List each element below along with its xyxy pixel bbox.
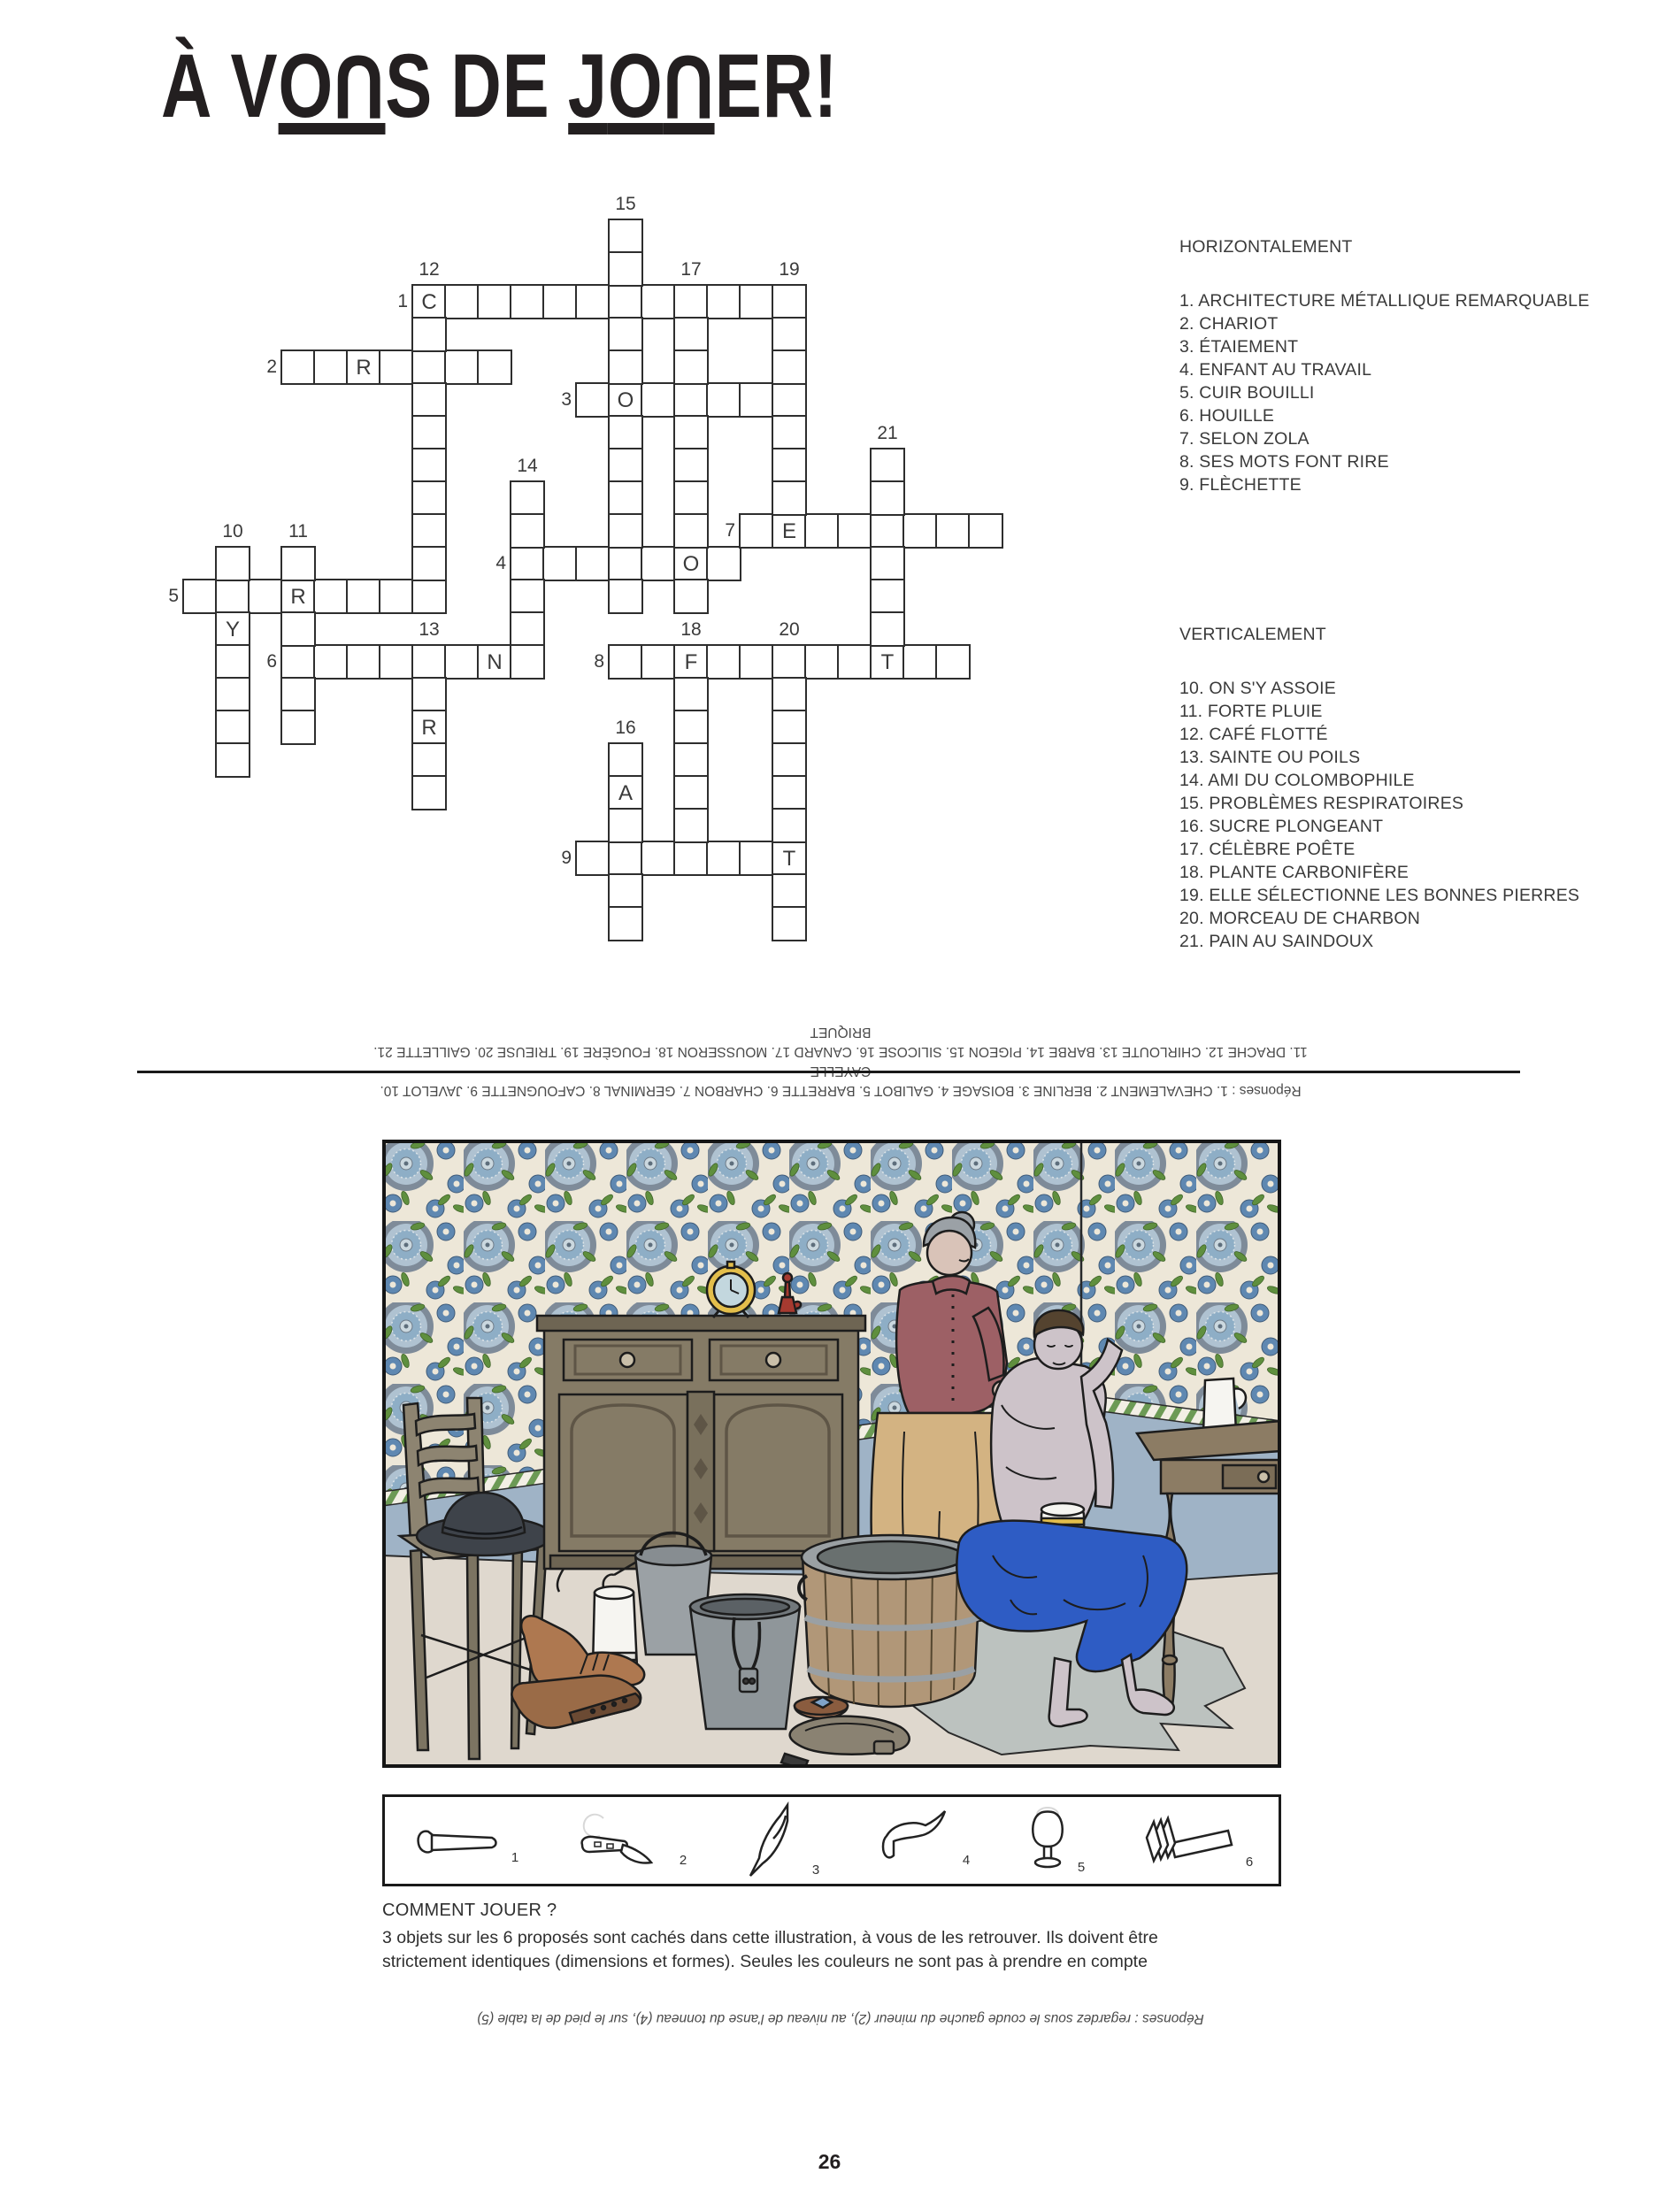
prefilled-letter-N: N xyxy=(477,644,512,680)
crossword-cell[interactable] xyxy=(510,513,545,549)
crossword-cell[interactable] xyxy=(280,349,316,385)
clue-item: 21. PAIN AU SAINDOUX xyxy=(1179,930,1657,953)
crossword-cell[interactable] xyxy=(870,611,905,647)
prefilled-letter-T: T xyxy=(870,644,905,680)
clue-item: 16. SUCRE PLONGEANT xyxy=(1179,815,1657,838)
clue-item: 14. AMI DU COLOMBOPHILE xyxy=(1179,769,1657,792)
crossword-cell[interactable] xyxy=(673,317,709,352)
clue-item: 7. SELON ZOLA xyxy=(1179,427,1657,450)
crossword-cell[interactable] xyxy=(477,284,512,319)
crossword-cell[interactable] xyxy=(837,644,872,680)
clue-item: 8. SES MOTS FONT RIRE xyxy=(1179,450,1657,473)
crossword-cell[interactable] xyxy=(280,710,316,745)
crossword-cell[interactable] xyxy=(673,841,709,876)
clue-item: 1. ARCHITECTURE MÉTALLIQUE REMARQUABLE xyxy=(1179,289,1657,312)
crossword-cell[interactable] xyxy=(444,284,480,319)
crossword-cell[interactable] xyxy=(870,579,905,614)
prefilled-letter-E: E xyxy=(772,513,807,549)
crossword-cell[interactable] xyxy=(870,480,905,516)
crossword-cell[interactable] xyxy=(804,644,840,680)
crossword-cell[interactable] xyxy=(608,808,643,843)
hidden-object-brush: 6 xyxy=(1136,1808,1253,1873)
crossword-cell[interactable] xyxy=(673,480,709,516)
how-to-play-line-2: strictement identiques (dimensions et fo… xyxy=(382,1950,1373,1974)
section-divider xyxy=(137,1071,1520,1073)
crossword-cell[interactable] xyxy=(641,382,676,418)
pocket-knife-icon xyxy=(570,1809,676,1871)
crossword-cell[interactable] xyxy=(215,710,250,745)
clue-number-17: 17 xyxy=(673,259,709,282)
clue-item: 6. HOUILLE xyxy=(1179,404,1657,427)
crossword-cell[interactable] xyxy=(706,382,741,418)
answers-line-2: 11. DRACHE 12. CHIRLOUTE 13. BARBE 14. P… xyxy=(372,1022,1310,1061)
crossword-cell[interactable] xyxy=(739,382,774,418)
prefilled-letter-C: C xyxy=(411,284,447,319)
crossword-cell[interactable] xyxy=(608,906,643,941)
clue-number-21: 21 xyxy=(870,423,905,446)
clue-number-15: 15 xyxy=(608,194,643,217)
crossword-cell[interactable] xyxy=(411,349,447,385)
crossword-cell[interactable] xyxy=(411,775,447,810)
crossword-cell[interactable] xyxy=(902,513,938,549)
clue-number-19: 19 xyxy=(772,259,807,282)
crossword-cell[interactable] xyxy=(739,841,774,876)
object-number: 2 xyxy=(680,1853,687,1868)
crossword-cell[interactable] xyxy=(411,513,447,549)
crossword-cell[interactable] xyxy=(772,349,807,385)
crossword-cell[interactable] xyxy=(608,742,643,778)
glass-lamp-icon xyxy=(1021,1802,1074,1878)
page-title: ÀVOUSDEJOUER! xyxy=(161,41,838,134)
clue-number-4: 4 xyxy=(480,546,506,581)
crossword-cell[interactable] xyxy=(542,546,578,581)
clue-number-2: 2 xyxy=(250,349,277,385)
clues-across: HORIZONTALEMENT 1. ARCHITECTURE MÉTALLIQ… xyxy=(1179,237,1657,496)
object-number: 4 xyxy=(963,1853,970,1868)
crossword-cell[interactable] xyxy=(510,644,545,680)
clue-number-8: 8 xyxy=(578,644,604,680)
prefilled-letter-O: O xyxy=(608,382,643,418)
bird-icon xyxy=(738,1800,809,1881)
crossword-cell[interactable] xyxy=(772,317,807,352)
crossword-cell[interactable] xyxy=(641,284,676,319)
clues-down-heading: VERTICALEMENT xyxy=(1179,625,1657,645)
crossword-cell[interactable] xyxy=(706,546,741,581)
crossword-answers-upside-down: Réponses : 1. CHEVALEMENT 2. BERLINE 3. … xyxy=(372,1022,1310,1100)
crossword-cell[interactable] xyxy=(379,579,414,614)
object-number: 6 xyxy=(1246,1855,1253,1870)
crossword-cell[interactable] xyxy=(935,513,971,549)
clues-down-list: 10. ON S'Y ASSOIE11. FORTE PLUIE12. CAFÉ… xyxy=(1179,677,1657,953)
crossword-cell[interactable] xyxy=(215,579,250,614)
crossword-cell[interactable] xyxy=(280,546,316,581)
crossword-cell[interactable] xyxy=(248,579,283,614)
clues-down: VERTICALEMENT 10. ON S'Y ASSOIE11. FORTE… xyxy=(1179,625,1657,953)
hidden-objects-illustration xyxy=(382,1140,1281,1768)
prefilled-letter-R: R xyxy=(411,710,447,745)
prefilled-letter-A: A xyxy=(608,775,643,810)
clue-number-1: 1 xyxy=(381,284,408,319)
hidden-object-bird: 3 xyxy=(738,1800,819,1881)
clue-item: 4. ENFANT AU TRAVAIL xyxy=(1179,358,1657,381)
crossword-cell[interactable] xyxy=(673,382,709,418)
crossword-cell[interactable] xyxy=(968,513,1003,549)
crossword-cell[interactable] xyxy=(608,415,643,450)
crossword-cell[interactable] xyxy=(608,546,643,581)
clue-item: 13. SAINTE OU POILS xyxy=(1179,746,1657,769)
page-number: 26 xyxy=(0,2150,1659,2174)
flat-cap-icon xyxy=(871,1809,959,1871)
hidden-object-cap: 4 xyxy=(871,1809,970,1871)
scrub-brush-icon xyxy=(1136,1808,1242,1873)
clue-number-12: 12 xyxy=(411,259,447,282)
object-number: 5 xyxy=(1078,1860,1085,1875)
crossword-cell[interactable] xyxy=(608,251,643,287)
crossword-cell[interactable] xyxy=(870,448,905,483)
crossword-cell[interactable] xyxy=(673,710,709,745)
crossword-cell[interactable] xyxy=(510,480,545,516)
clue-number-9: 9 xyxy=(545,841,572,876)
objects-strip: 1 2 3 xyxy=(382,1794,1281,1886)
crossword-cell[interactable] xyxy=(706,644,741,680)
clues-across-heading: HORIZONTALEMENT xyxy=(1179,237,1657,257)
hidden-object-knife: 2 xyxy=(570,1809,687,1871)
crossword-cell[interactable] xyxy=(510,611,545,647)
crossword-cell[interactable] xyxy=(772,382,807,418)
clues-across-list: 1. ARCHITECTURE MÉTALLIQUE REMARQUABLE2.… xyxy=(1179,289,1657,496)
prefilled-letter-Y: Y xyxy=(215,611,250,647)
clue-item: 18. PLANTE CARBONIFÈRE xyxy=(1179,861,1657,884)
clue-number-7: 7 xyxy=(709,513,735,549)
clue-item: 5. CUIR BOUILLI xyxy=(1179,381,1657,404)
crossword-cell[interactable] xyxy=(641,841,676,876)
crossword-cell[interactable] xyxy=(411,448,447,483)
clue-number-11: 11 xyxy=(280,521,316,544)
crossword-cell[interactable] xyxy=(510,284,545,319)
crossword-cell[interactable] xyxy=(673,677,709,712)
clue-number-16: 16 xyxy=(608,718,643,741)
crossword-cell[interactable] xyxy=(870,513,905,549)
crossword-cell[interactable] xyxy=(673,742,709,778)
clue-item: 11. FORTE PLUIE xyxy=(1179,700,1657,723)
prefilled-letter-R: R xyxy=(280,579,316,614)
crossword-cell[interactable] xyxy=(608,579,643,614)
prefilled-letter-O: O xyxy=(673,546,709,581)
clue-item: 12. CAFÉ FLOTTÉ xyxy=(1179,723,1657,746)
bowl xyxy=(795,1697,848,1718)
crossword-cell[interactable] xyxy=(706,841,741,876)
crossword-cell[interactable] xyxy=(411,415,447,450)
crossword-cell[interactable] xyxy=(510,579,545,614)
crossword-cell[interactable] xyxy=(608,873,643,909)
crossword-cell[interactable] xyxy=(804,513,840,549)
clue-number-14: 14 xyxy=(510,456,545,479)
prefilled-letter-R: R xyxy=(346,349,381,385)
crossword-cell[interactable] xyxy=(902,644,938,680)
crossword-cell[interactable] xyxy=(772,644,807,680)
crossword-cell[interactable] xyxy=(280,644,316,680)
crossword-cell[interactable] xyxy=(608,841,643,876)
crossword-cell[interactable] xyxy=(575,841,611,876)
crossword-cell[interactable] xyxy=(510,546,545,581)
crossword-cell[interactable] xyxy=(411,677,447,712)
clue-item: 20. MORCEAU DE CHARBON xyxy=(1179,907,1657,930)
crossword-cell[interactable] xyxy=(772,710,807,745)
clue-item: 2. CHARIOT xyxy=(1179,312,1657,335)
crossword-cell[interactable] xyxy=(673,775,709,810)
clue-item: 9. FLÈCHETTE xyxy=(1179,473,1657,496)
crossword-cell[interactable] xyxy=(837,513,872,549)
crossword-cell[interactable] xyxy=(772,480,807,516)
crossword-cell[interactable] xyxy=(935,644,971,680)
clue-item: 10. ON S'Y ASSOIE xyxy=(1179,677,1657,700)
crossword-cell[interactable] xyxy=(608,284,643,319)
crossword-cell[interactable] xyxy=(313,579,349,614)
crossword-cell[interactable] xyxy=(673,349,709,385)
nail-pin-icon xyxy=(411,1812,508,1869)
crossword-cell[interactable] xyxy=(739,284,774,319)
crossword-cell[interactable] xyxy=(772,906,807,941)
crossword-cell[interactable] xyxy=(411,480,447,516)
crossword-cell[interactable] xyxy=(411,382,447,418)
crossword-cell[interactable] xyxy=(673,448,709,483)
crossword-cell[interactable] xyxy=(772,677,807,712)
crossword-cell[interactable] xyxy=(608,513,643,549)
clue-item: 17. CÉLÈBRE POÊTE xyxy=(1179,838,1657,861)
crossword-cell[interactable] xyxy=(608,349,643,385)
how-to-play: COMMENT JOUER ? 3 objets sur les 6 propo… xyxy=(382,1901,1373,1974)
crossword-cell[interactable] xyxy=(772,873,807,909)
crossword-cell[interactable] xyxy=(739,513,774,549)
hidden-object-glass: 5 xyxy=(1021,1802,1085,1878)
clue-number-5: 5 xyxy=(152,579,179,614)
crossword-cell[interactable] xyxy=(444,644,480,680)
crossword-cell[interactable] xyxy=(772,415,807,450)
clue-number-10: 10 xyxy=(215,521,250,544)
crossword-cell[interactable] xyxy=(772,448,807,483)
clue-number-6: 6 xyxy=(250,644,277,680)
clue-number-3: 3 xyxy=(545,382,572,418)
crossword-cell[interactable] xyxy=(379,349,414,385)
crossword-cell[interactable] xyxy=(313,644,349,680)
crossword-cell[interactable] xyxy=(477,349,512,385)
crossword-cell[interactable] xyxy=(739,644,774,680)
crossword-cell[interactable] xyxy=(444,349,480,385)
crossword-cell[interactable] xyxy=(411,546,447,581)
crossword-cell[interactable] xyxy=(215,742,250,778)
how-to-play-heading: COMMENT JOUER ? xyxy=(382,1901,1373,1921)
crossword-cell[interactable] xyxy=(673,579,709,614)
crossword-cell[interactable] xyxy=(313,349,349,385)
crossword-cell[interactable] xyxy=(772,775,807,810)
crossword-cell[interactable] xyxy=(411,579,447,614)
crossword-cell[interactable] xyxy=(379,644,414,680)
crossword-cell[interactable] xyxy=(215,644,250,680)
crossword-cell[interactable] xyxy=(280,677,316,712)
crossword-cell[interactable] xyxy=(346,579,381,614)
crossword-cell[interactable] xyxy=(772,808,807,843)
crossword-cell[interactable] xyxy=(608,448,643,483)
crossword-cell[interactable] xyxy=(641,546,676,581)
answers-line-1: Réponses : 1. CHEVALEMENT 2. BERLINE 3. … xyxy=(372,1061,1310,1100)
crossword-cell[interactable] xyxy=(608,219,643,254)
object-number: 1 xyxy=(511,1850,518,1865)
crossword-cell[interactable] xyxy=(641,644,676,680)
crossword-grid: 123456789101112131415161718192021CROEORY… xyxy=(117,219,1037,944)
crossword-cell[interactable] xyxy=(411,742,447,778)
clue-number-20: 20 xyxy=(772,619,807,642)
prefilled-letter-T: T xyxy=(772,841,807,876)
crossword-cell[interactable] xyxy=(215,677,250,712)
crossword-cell[interactable] xyxy=(575,284,611,319)
hidden-objects-answers-upside-down: Réponses : regardez sous le coude gauche… xyxy=(425,2010,1256,2026)
hidden-object-nail: 1 xyxy=(411,1812,518,1869)
crossword-cell[interactable] xyxy=(575,546,611,581)
clue-number-18: 18 xyxy=(673,619,709,642)
crossword-cell[interactable] xyxy=(673,808,709,843)
clue-item: 3. ÉTAIEMENT xyxy=(1179,335,1657,358)
crossword-cell[interactable] xyxy=(706,284,741,319)
crossword-cell[interactable] xyxy=(411,644,447,680)
clue-number-13: 13 xyxy=(411,619,447,642)
crossword-cell[interactable] xyxy=(182,579,218,614)
how-to-play-line-1: 3 objets sur les 6 proposés sont cachés … xyxy=(382,1926,1373,1950)
crossword-cell[interactable] xyxy=(411,317,447,352)
crossword-cell[interactable] xyxy=(608,644,643,680)
crossword-cell[interactable] xyxy=(673,513,709,549)
crossword-cell[interactable] xyxy=(870,546,905,581)
clue-item: 15. PROBLÈMES RESPIRATOIRES xyxy=(1179,792,1657,815)
clue-item: 19. ELLE SÉLECTIONNE LES BONNES PIERRES xyxy=(1179,884,1657,907)
magazine-page: ÀVOUSDEJOUER! 12345678910111213141516171… xyxy=(0,0,1659,2212)
crossword-cell[interactable] xyxy=(346,644,381,680)
crossword-cell[interactable] xyxy=(608,480,643,516)
crossword-cell[interactable] xyxy=(608,317,643,352)
crossword-cell[interactable] xyxy=(575,382,611,418)
prefilled-letter-F: F xyxy=(673,644,709,680)
crossword-cell[interactable] xyxy=(215,546,250,581)
crossword-cell[interactable] xyxy=(772,742,807,778)
wash-tub xyxy=(799,1535,983,1707)
crossword-cell[interactable] xyxy=(673,415,709,450)
crossword-cell[interactable] xyxy=(772,284,807,319)
crossword-cell[interactable] xyxy=(280,611,316,647)
bucket-large xyxy=(690,1594,800,1729)
crossword-cell[interactable] xyxy=(542,284,578,319)
object-number: 3 xyxy=(812,1863,819,1878)
crossword-cell[interactable] xyxy=(673,284,709,319)
